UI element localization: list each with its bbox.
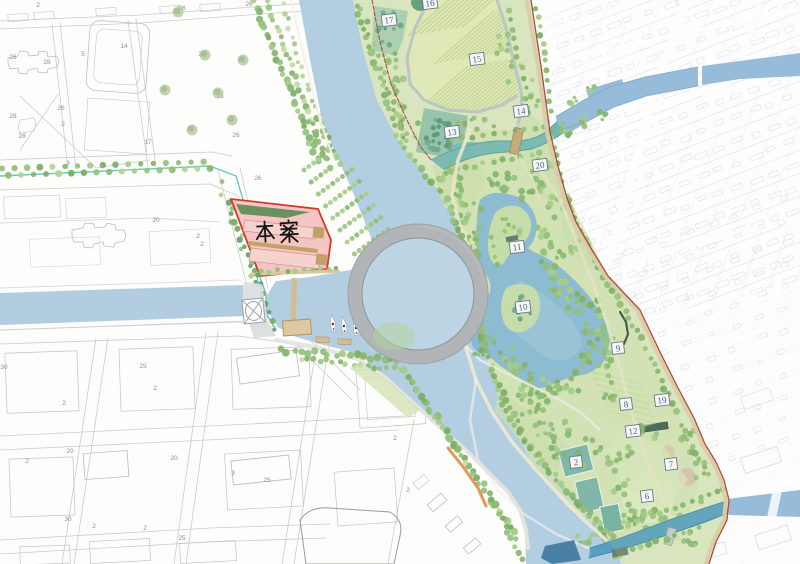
svg-text:20: 20 bbox=[170, 455, 178, 462]
svg-text:30: 30 bbox=[64, 516, 72, 523]
svg-text:13: 13 bbox=[447, 127, 458, 138]
svg-text:19: 19 bbox=[657, 395, 668, 406]
svg-text:20: 20 bbox=[152, 217, 160, 224]
svg-text:10: 10 bbox=[518, 302, 529, 313]
svg-text:2: 2 bbox=[61, 121, 65, 128]
svg-text:2: 2 bbox=[196, 233, 200, 240]
svg-text:2: 2 bbox=[406, 487, 410, 494]
svg-text:14: 14 bbox=[120, 43, 128, 50]
svg-text:2: 2 bbox=[92, 523, 96, 530]
svg-text:26: 26 bbox=[57, 105, 65, 112]
svg-text:26: 26 bbox=[232, 132, 240, 139]
svg-text:25: 25 bbox=[263, 477, 271, 484]
svg-text:3: 3 bbox=[231, 470, 235, 477]
svg-text:16: 16 bbox=[425, 0, 436, 9]
svg-text:2: 2 bbox=[143, 525, 147, 532]
svg-text:25: 25 bbox=[139, 363, 147, 370]
svg-text:2: 2 bbox=[153, 385, 157, 392]
svg-text:28: 28 bbox=[18, 133, 26, 140]
svg-text:12: 12 bbox=[628, 426, 638, 437]
svg-text:2: 2 bbox=[62, 400, 66, 407]
svg-text:25: 25 bbox=[178, 535, 186, 542]
svg-text:26: 26 bbox=[254, 175, 262, 182]
svg-text:30: 30 bbox=[0, 364, 8, 371]
svg-text:26: 26 bbox=[9, 54, 17, 61]
svg-text:28: 28 bbox=[43, 59, 51, 66]
svg-text:5: 5 bbox=[81, 51, 85, 58]
svg-text:2: 2 bbox=[25, 458, 29, 465]
svg-text:15: 15 bbox=[472, 54, 483, 65]
svg-text:28: 28 bbox=[9, 113, 17, 120]
svg-text:11: 11 bbox=[512, 242, 522, 253]
svg-text:2: 2 bbox=[393, 435, 397, 442]
svg-text:20: 20 bbox=[535, 160, 546, 171]
svg-text:17: 17 bbox=[384, 15, 395, 26]
svg-text:17: 17 bbox=[144, 139, 152, 146]
svg-text:14: 14 bbox=[516, 106, 527, 117]
svg-text:2: 2 bbox=[36, 2, 40, 9]
svg-text:20: 20 bbox=[66, 448, 74, 455]
svg-text:2: 2 bbox=[200, 241, 204, 248]
